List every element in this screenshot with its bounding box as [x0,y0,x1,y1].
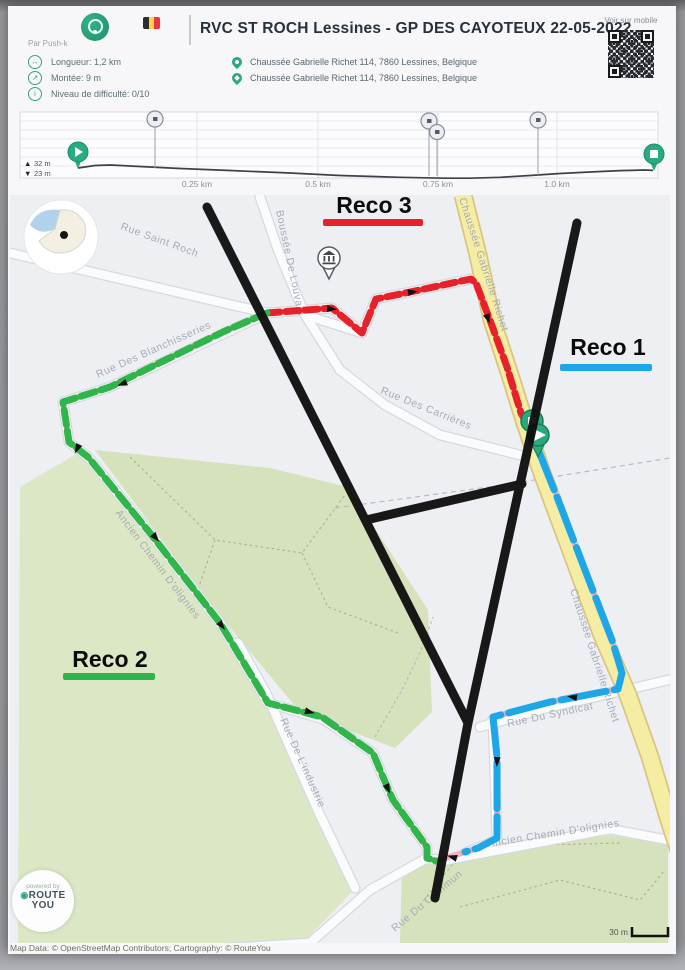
routeyou-pin-icon: ◉ [20,890,28,900]
tick-10: 1.0 km [544,179,570,189]
stat-difficulty: i Niveau de difficulté: 0/10 [28,87,149,101]
qr-code [608,30,654,78]
start-pin-icon [230,55,244,69]
route-map: Rue Saint Roch Rue Des Blanchisseries Bo… [10,195,670,943]
distance-icon: ↔ [28,55,42,69]
chart-frame [20,112,658,178]
descent-icon: ▼ [24,169,31,178]
reco1-label: Reco 1 [570,334,646,360]
powered-by-text: powered by [12,883,74,890]
stat-climb: ↗ Montée: 9 m [28,71,101,85]
tick-025: 0.25 km [182,179,212,189]
routeyou-watermark: powered by ◉ROUTE YOU [12,870,74,932]
author-line: Par Push-k [28,39,68,48]
difficulty-icon: i [28,87,42,101]
qr-caption: Voir sur mobile [586,16,676,25]
ascent-icon: ▲ [24,159,31,168]
scale-label: 30 m [609,927,628,937]
min-altitude: 23 m [34,169,51,178]
x-axis-ticks: 0.25 km 0.5 km 0.75 km 1.0 km [182,179,570,189]
printed-route-sheet: RVC ST ROCH Lessines - GP DES CAYOTEUX 2… [8,6,676,954]
end-pin-icon [230,71,244,85]
map-attribution: Map Data: © OpenStreetMap Contributors; … [10,943,271,953]
elevation-profile-chart: ▲ 32 m ▼ 23 m 0.25 km 0.5 km 0.75 km 1.0… [16,110,668,194]
reco3-underline [323,219,423,226]
location-dot [60,231,68,239]
reco2-label: Reco 2 [72,646,147,672]
climb-icon: ↗ [28,71,42,85]
stat-distance: ↔ Longueur: 1,2 km [28,55,121,69]
qr-block: Voir sur mobile [586,16,676,78]
reco1-underline [560,364,652,371]
belgium-flag-icon [143,17,160,29]
reco2-underline [63,673,155,680]
reco3-label: Reco 3 [336,195,411,218]
start-address: Chaussée Gabrielle Richet 114, 7860 Less… [232,55,477,69]
tick-075: 0.75 km [423,179,453,189]
stop-icon [650,150,658,158]
country-inset [24,200,98,274]
routeyou-logo-icon [81,13,109,41]
routeyou-you-text: YOU [12,901,74,911]
end-address: Chaussée Gabrielle Richet 114, 7860 Less… [232,71,477,85]
tick-05: 0.5 km [305,179,331,189]
max-altitude: 32 m [34,159,51,168]
header-divider [189,15,191,45]
